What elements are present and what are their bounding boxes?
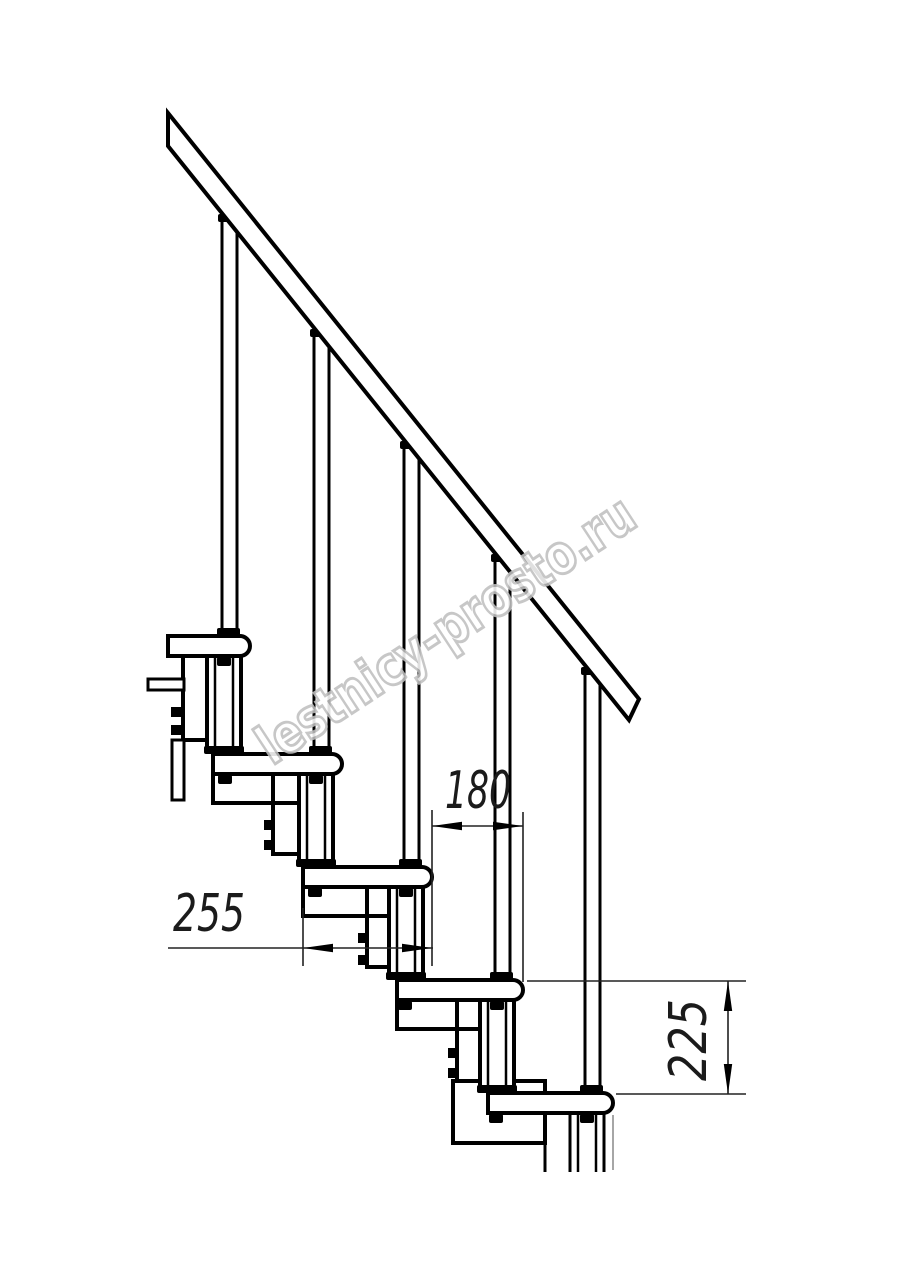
baluster xyxy=(217,214,240,636)
dim-arrow-right xyxy=(493,822,523,830)
tread xyxy=(303,867,432,887)
dimension-step-rise: 225 xyxy=(527,981,746,1094)
support-column xyxy=(207,654,241,748)
baluster xyxy=(580,667,603,1093)
tread xyxy=(488,1093,613,1113)
watermark-text: lestnicy-prosto.ru xyxy=(245,483,647,777)
stringer-module-1 xyxy=(148,656,213,800)
support-column xyxy=(389,885,423,974)
staircase-drawing-canvas: 255 180 225 lestnicy-prosto.ru xyxy=(0,0,914,1280)
dim-value-225: 225 xyxy=(659,999,719,1081)
dim-arrow-up xyxy=(724,981,732,1011)
dim-arrow-left xyxy=(303,944,333,952)
staircase-technical-drawing: 255 180 225 lestnicy-prosto.ru xyxy=(0,0,914,1280)
dim-value-255: 255 xyxy=(173,884,245,944)
stringer-module-4 xyxy=(397,1000,545,1143)
tread xyxy=(168,636,250,656)
support-column xyxy=(299,772,333,861)
dim-arrow-down xyxy=(724,1064,732,1094)
tread xyxy=(397,980,523,1000)
dim-arrow-left xyxy=(432,822,462,830)
support-column xyxy=(480,998,514,1087)
dim-value-180: 180 xyxy=(445,761,511,821)
stringer-module-2 xyxy=(213,774,303,868)
stringer-module-3 xyxy=(303,887,397,981)
